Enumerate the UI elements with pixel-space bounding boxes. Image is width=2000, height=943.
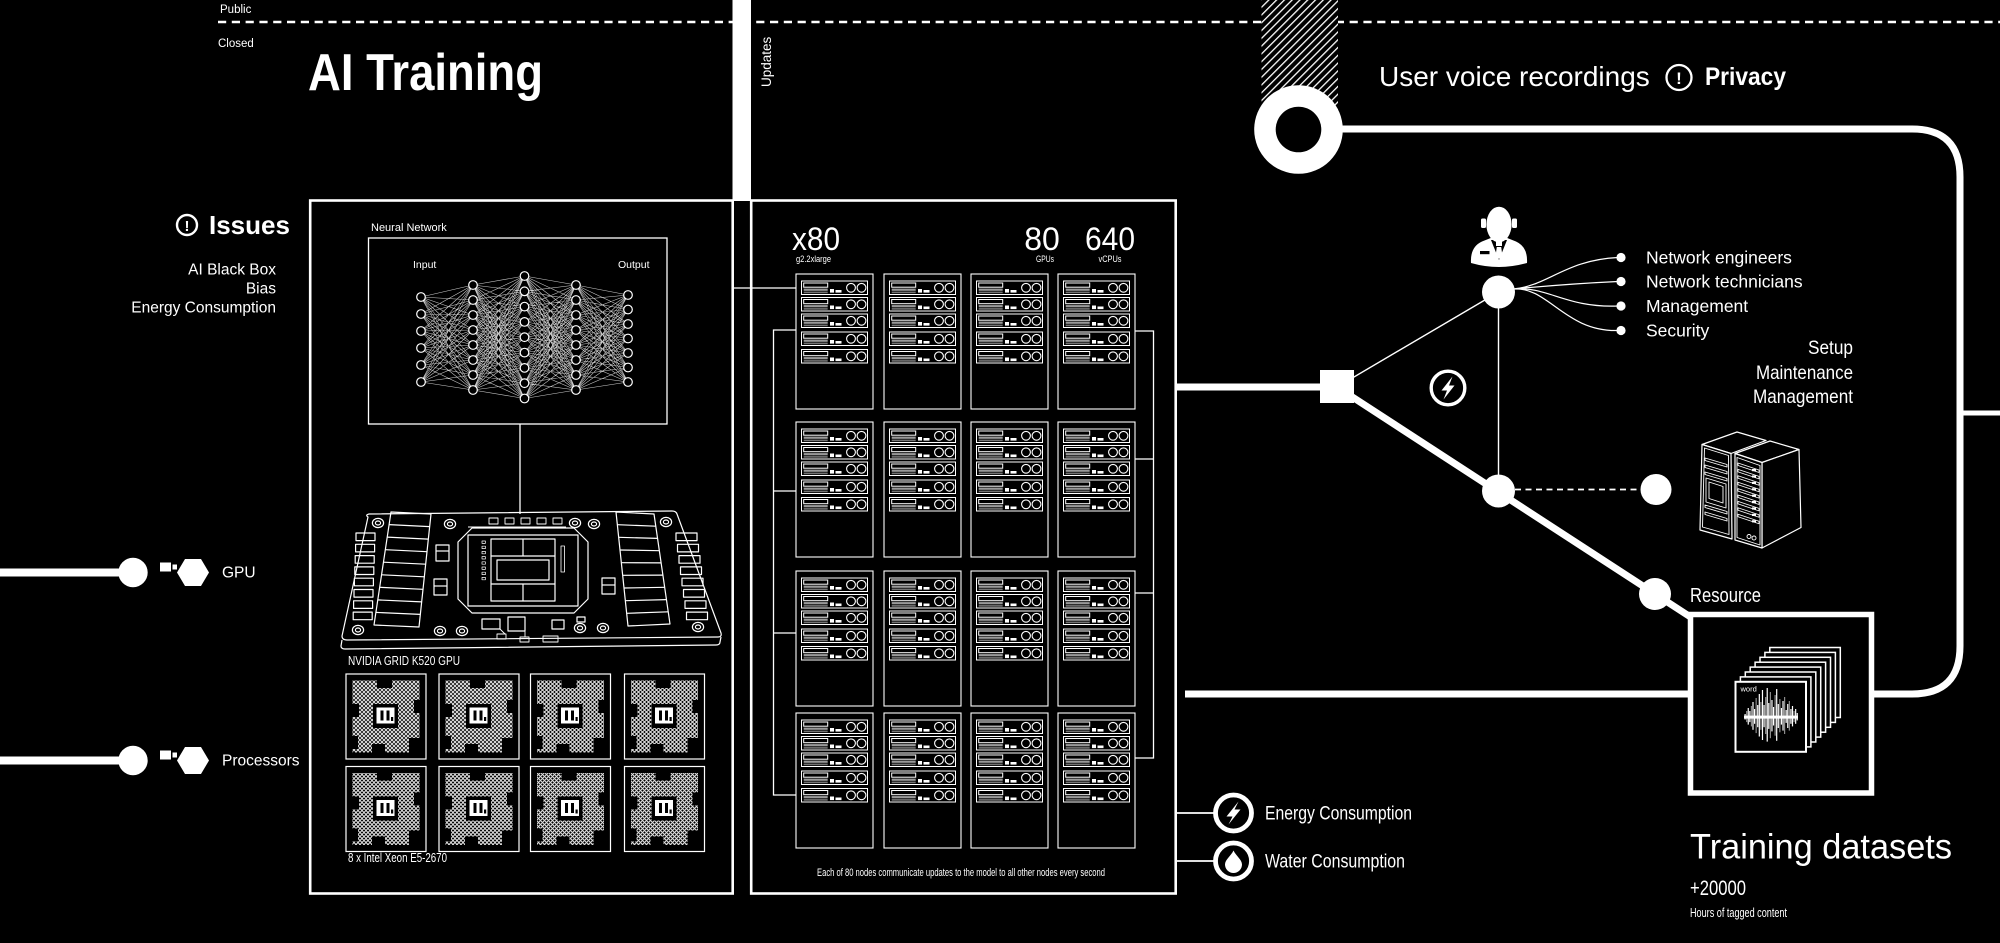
svg-text:GPU: GPU	[222, 565, 256, 582]
svg-text:word: word	[1740, 685, 1757, 694]
svg-text:Hours of tagged content: Hours of tagged content	[1690, 906, 1787, 920]
svg-text:Network technicians: Network technicians	[1646, 272, 1803, 292]
svg-text:GPUs: GPUs	[1036, 254, 1054, 264]
svg-text:Neural Network: Neural Network	[371, 222, 447, 234]
svg-text:NVIDIA GRID K520 GPU: NVIDIA GRID K520 GPU	[348, 653, 460, 668]
svg-text:!: !	[185, 218, 190, 235]
svg-text:Energy Consumption: Energy Consumption	[1265, 804, 1412, 825]
svg-text:Updates: Updates	[759, 36, 774, 87]
svg-text:Bias: Bias	[246, 281, 276, 298]
svg-text:Water Consumption: Water Consumption	[1265, 852, 1405, 873]
svg-text:Maintenance: Maintenance	[1756, 362, 1853, 384]
svg-text:Energy Consumption: Energy Consumption	[131, 300, 276, 317]
svg-text:AI Training: AI Training	[308, 44, 543, 102]
svg-text:Management: Management	[1753, 386, 1854, 408]
svg-text:Setup: Setup	[1808, 337, 1853, 359]
svg-text:Training datasets: Training datasets	[1690, 827, 1952, 867]
svg-text:AI Black Box: AI Black Box	[188, 262, 276, 279]
svg-text:Issues: Issues	[209, 210, 290, 240]
svg-text:g2.2xlarge: g2.2xlarge	[796, 254, 831, 265]
svg-text:8 x Intel Xeon E5-2670: 8 x Intel Xeon E5-2670	[348, 850, 447, 865]
svg-text:x80: x80	[792, 221, 840, 257]
svg-text:User voice recordings: User voice recordings	[1379, 61, 1650, 92]
svg-text:640: 640	[1085, 221, 1135, 257]
svg-text:Processors: Processors	[222, 753, 300, 770]
svg-text:vCPUs: vCPUs	[1099, 254, 1122, 264]
svg-text:Each of 80 nodes communicate u: Each of 80 nodes communicate updates to …	[817, 867, 1105, 879]
svg-text:Privacy: Privacy	[1705, 63, 1786, 91]
svg-text:Management: Management	[1646, 296, 1748, 316]
svg-text:Output: Output	[618, 259, 650, 271]
svg-text:!: !	[1676, 69, 1682, 88]
svg-text:Security: Security	[1646, 321, 1709, 341]
svg-text:80: 80	[1024, 221, 1060, 257]
svg-text:Input: Input	[413, 259, 436, 271]
svg-text:Resource: Resource	[1690, 585, 1761, 607]
svg-text:+20000: +20000	[1690, 876, 1746, 900]
svg-text:Public: Public	[220, 4, 252, 16]
svg-text:Network engineers: Network engineers	[1646, 248, 1792, 268]
svg-text:Closed: Closed	[218, 38, 254, 50]
